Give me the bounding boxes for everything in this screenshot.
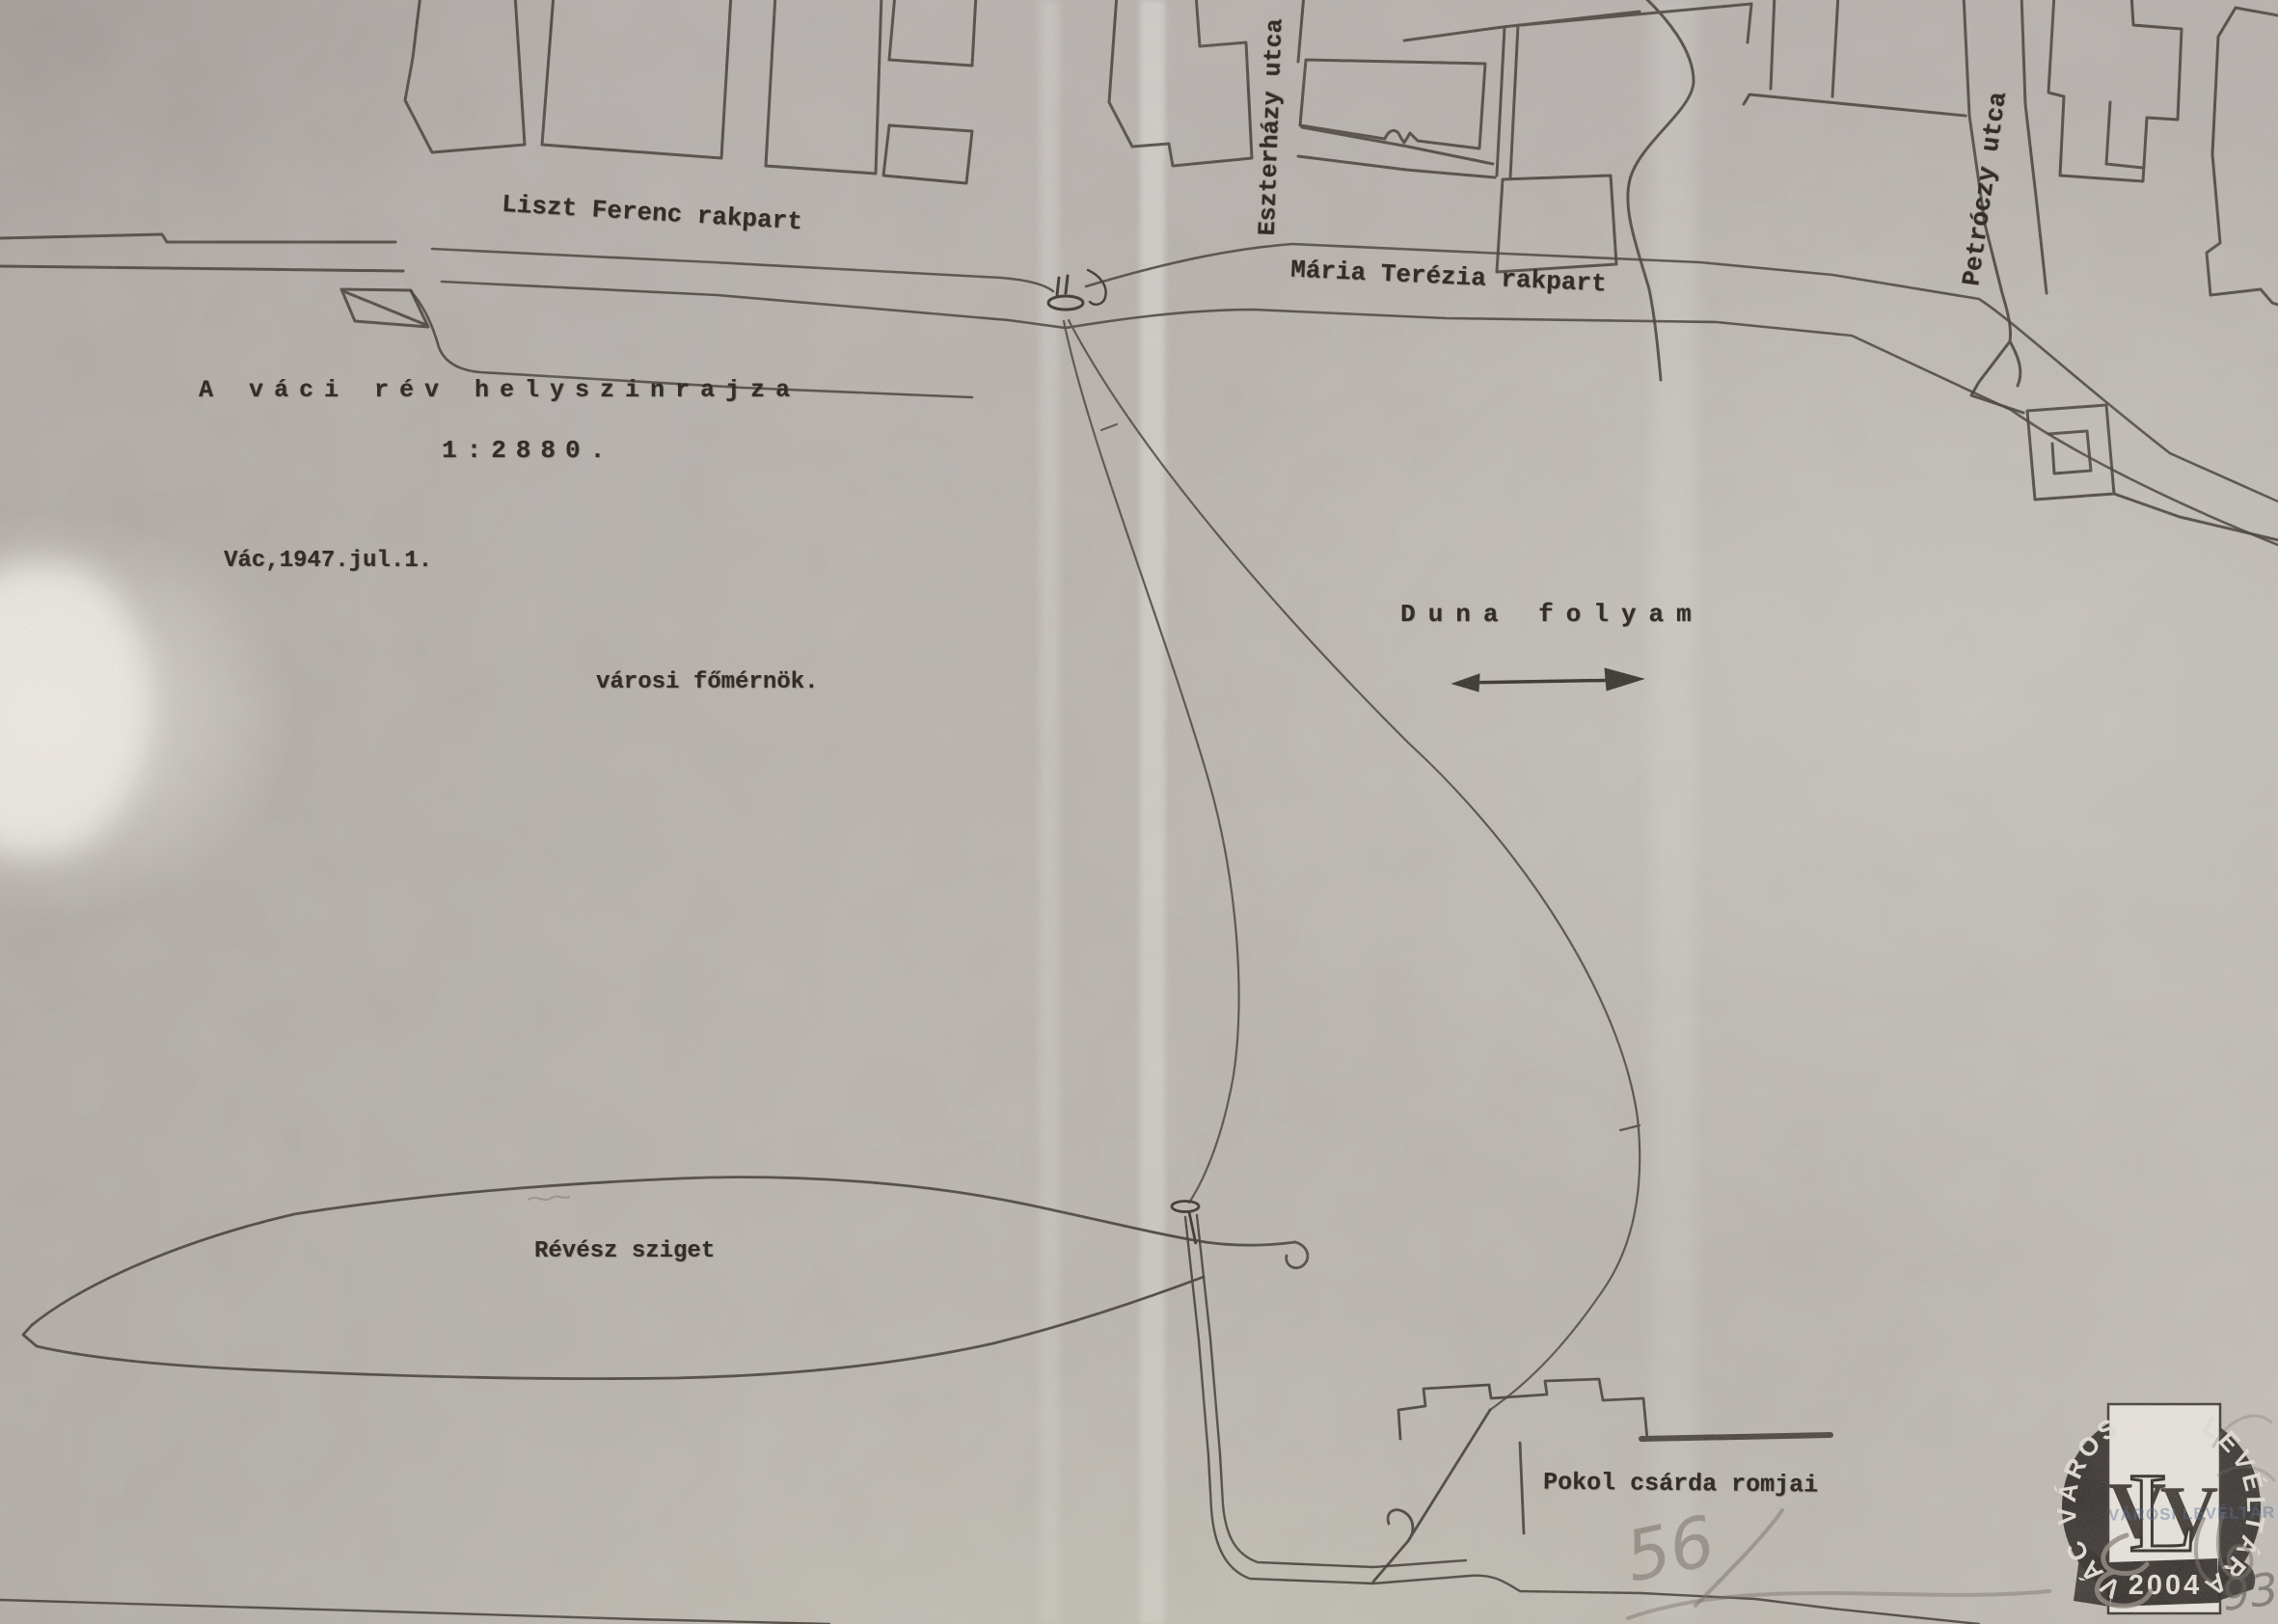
faint-blue-overprint: VÁROSI LEVÉLTÁR xyxy=(2108,1502,2278,1525)
label-island: Révész sziget xyxy=(534,1238,715,1264)
map-date: Vác,1947.jul.1. xyxy=(224,548,432,574)
map-title: A váci rév helyszinrajza xyxy=(199,376,800,404)
paper-grain xyxy=(0,0,2278,1624)
map-scale: 1:2880. xyxy=(442,436,614,465)
scanned-archive-map: V V L 2004 VÁC VÁROS LEVÉLTÁRA 56 932/ xyxy=(0,0,2278,1624)
label-pokol-ruins: Pokol csárda romjai xyxy=(1543,1469,1818,1500)
label-danube: Duna folyam xyxy=(1400,600,1704,629)
map-drawing: V V L 2004 VÁC VÁROS LEVÉLTÁRA 56 932/ xyxy=(0,0,2278,1624)
map-signature: városi főmérnök. xyxy=(596,669,818,695)
